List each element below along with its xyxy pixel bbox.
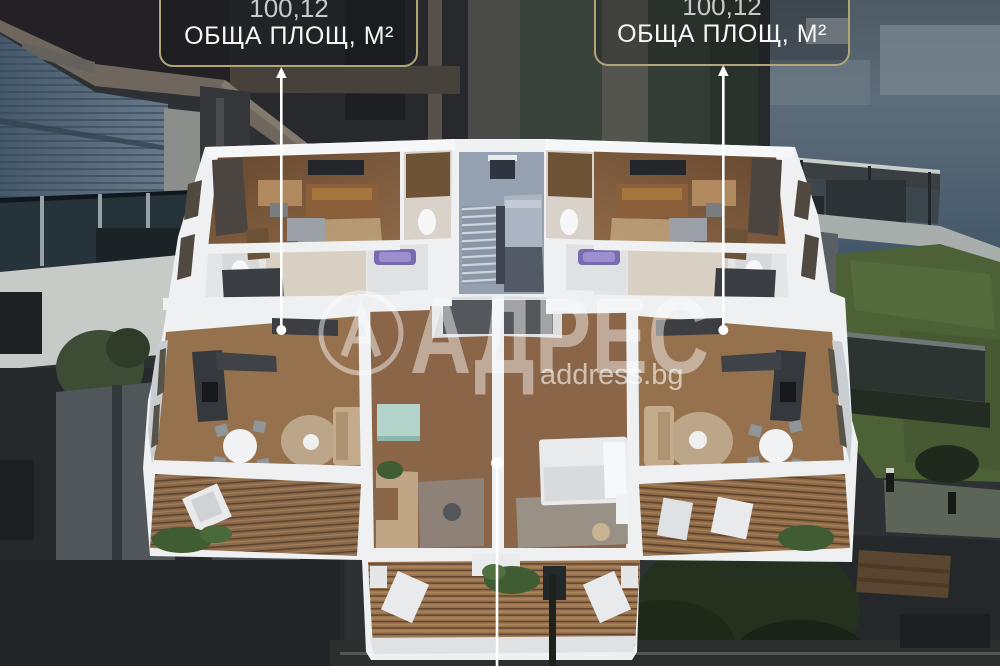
svg-text:address.bg: address.bg [540,359,684,391]
svg-text:100,12: 100,12 [249,0,329,23]
svg-text:ОБЩА ПЛОЩ, М²: ОБЩА ПЛОЩ, М² [184,22,394,50]
svg-text:ОБЩА ПЛОЩ, М²: ОБЩА ПЛОЩ, М² [617,20,827,48]
svg-text:100,12: 100,12 [682,0,762,21]
